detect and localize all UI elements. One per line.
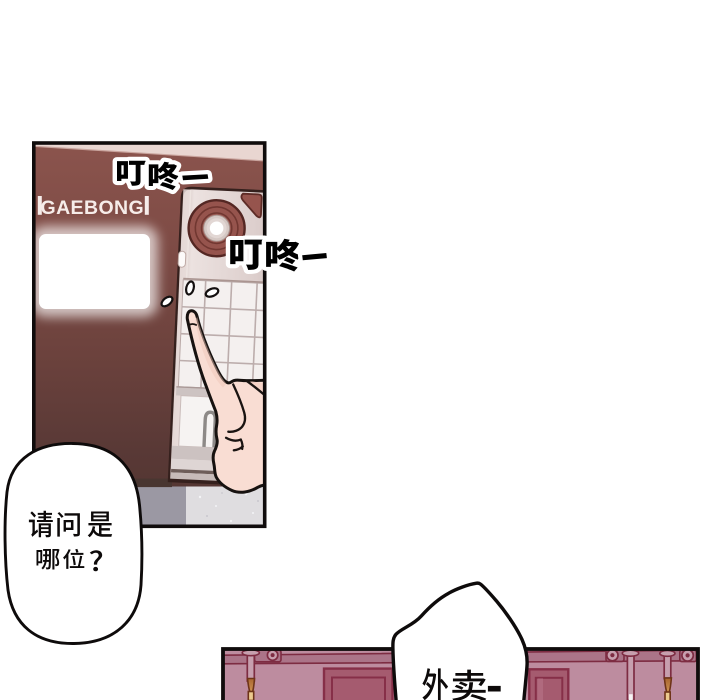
svg-text:GAEBONG: GAEBONG xyxy=(41,197,145,219)
